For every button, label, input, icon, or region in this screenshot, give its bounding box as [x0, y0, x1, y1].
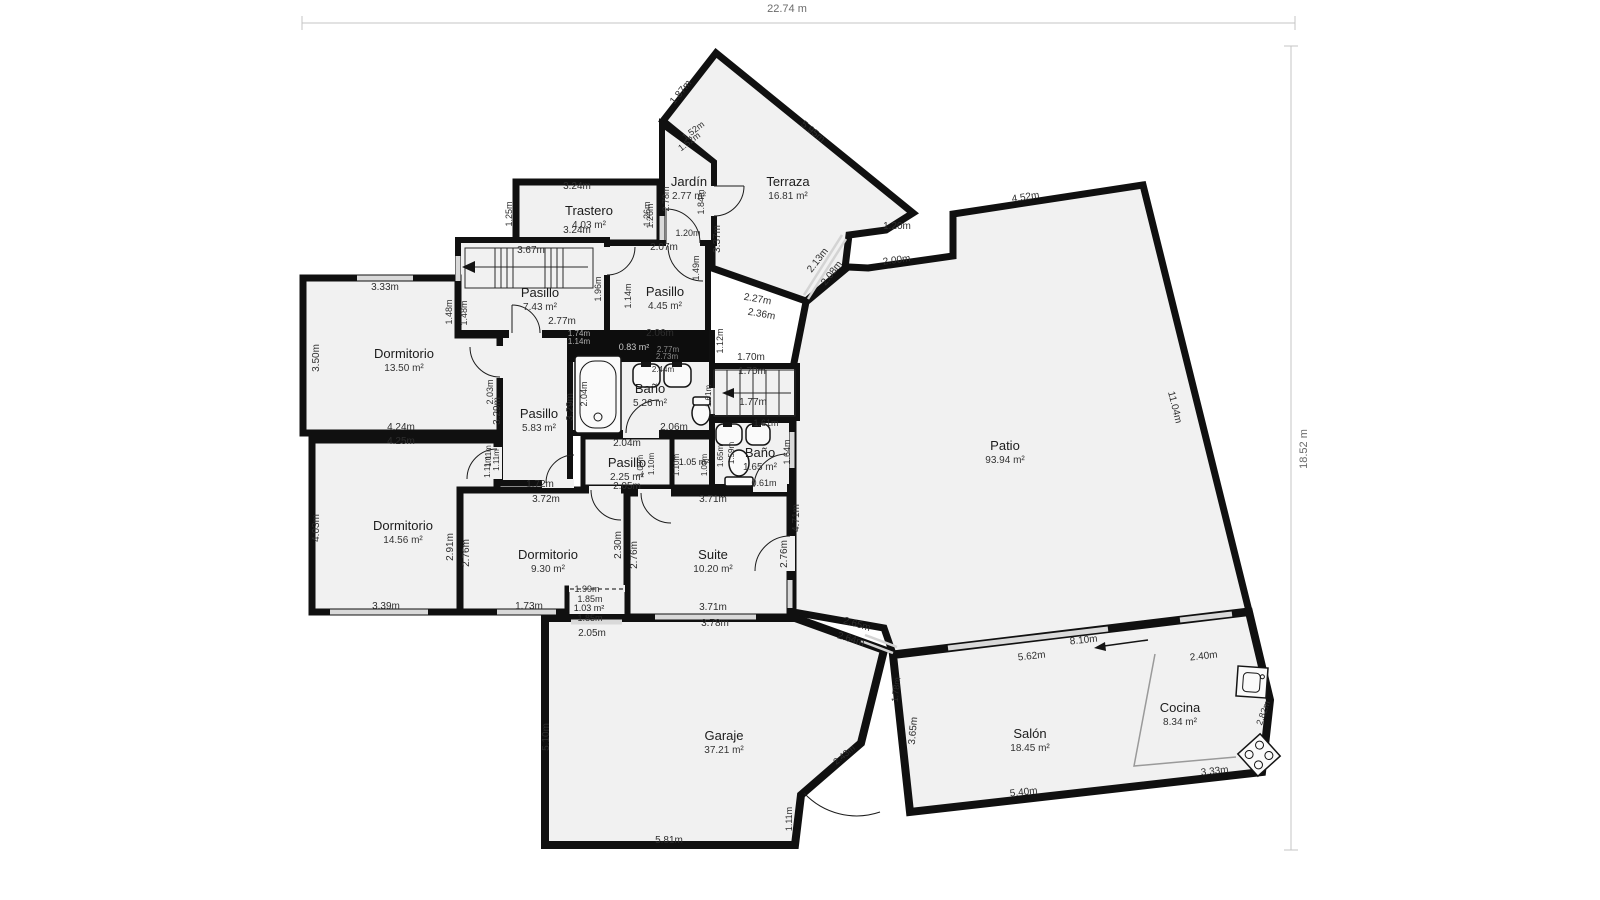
room-label-dormitorio-3: Dormitorio — [518, 547, 578, 562]
dimension-label: 2.27m — [743, 292, 772, 308]
floor-plan-page: 22.74 m 18.52 m Terraza16.81 m²Jardín2.7… — [0, 0, 1600, 900]
dimension-label: 2.07m — [650, 242, 678, 253]
dimension-label: 2.77m — [548, 316, 576, 327]
dimension-label: 2.30m — [613, 531, 624, 559]
room-area-patio: 93.94 m² — [985, 455, 1025, 466]
dimension-label: 2.76m — [779, 540, 790, 568]
dimension-label: 1.11m — [492, 449, 501, 471]
dimension-label: 0.61m — [751, 478, 776, 488]
door-arc — [804, 793, 880, 816]
dimension-label: 2.76m — [629, 541, 640, 569]
room-label-dormitorio-1: Dormitorio — [374, 346, 434, 361]
dimension-label: 1.48m — [459, 300, 469, 325]
dimension-label: 1.48m — [444, 299, 454, 324]
dimension-label: 4.25m — [387, 436, 415, 447]
dimension-label: 1.10m — [672, 454, 681, 477]
dimension-label: 3.33m — [371, 282, 399, 293]
dimension-label: 4.71m — [791, 504, 802, 532]
dimension-label: 2.76m — [461, 539, 472, 567]
dimension-label: 1.09m — [700, 454, 709, 477]
dimension-label: 1.11m — [784, 807, 794, 831]
room-label-bano-principal: Baño — [635, 381, 665, 396]
dimension-label: 2.73m — [656, 352, 679, 361]
room-area-pasillo-central: 5.83 m² — [522, 423, 557, 434]
room-area-cocina: 8.34 m² — [1163, 717, 1198, 728]
room-area-pasillo-escalera: 7.43 m² — [523, 302, 558, 313]
dimension-label: 3.39m — [372, 601, 400, 612]
dimension-label: 1.65m — [716, 445, 725, 468]
dimension-label: 5.81m — [655, 835, 683, 846]
room-label-pasillo-norte: Pasillo — [646, 284, 684, 299]
dimension-label: 1.99m — [574, 584, 599, 594]
dimension-label: 1.70m — [738, 366, 766, 377]
dimension-label: 1.10m — [647, 453, 656, 476]
dimension-label: 1.73m — [515, 601, 543, 612]
room-area-salon: 18.45 m² — [1010, 743, 1050, 754]
dimension-label: 2.44m — [652, 365, 675, 374]
dimension-label: 2.04m — [579, 381, 589, 406]
dimension-label: 1.20m — [883, 221, 911, 232]
dimension-label: 1.72m — [526, 479, 554, 490]
dimension-label: 1.77m — [739, 397, 767, 408]
overall-width-label: 22.74 m — [767, 3, 807, 15]
room-label-bano-pequeno: Baño — [745, 445, 775, 460]
room-area-armario-oscuro: 0.83 m² — [619, 342, 650, 352]
room-label-suite: Suite — [698, 547, 728, 562]
dimension-label: 3.24m — [563, 181, 591, 192]
room-area-dormitorio-1: 13.50 m² — [384, 363, 424, 374]
room-label-pasillo-central: Pasillo — [520, 406, 558, 421]
room-area-armario-2: 1.03 m² — [574, 603, 605, 613]
room-area-pasillo-norte: 4.45 m² — [648, 301, 683, 312]
dimension-label: 1.20m — [675, 228, 700, 238]
dimension-label: 2.04m — [613, 438, 641, 449]
dimension-label: 3.50m — [311, 344, 322, 372]
room-area-dormitorio-2: 14.56 m² — [383, 535, 423, 546]
dimension-label: 4.24m — [387, 422, 415, 433]
room-area-terraza: 16.81 m² — [768, 191, 808, 202]
dimension-label: 1.61m — [753, 418, 778, 428]
room-label-terraza: Terraza — [766, 174, 810, 189]
dimension-label: 3.29m — [565, 393, 576, 421]
dimension-label: 1.70m — [737, 352, 765, 363]
room-area-garaje: 37.21 m² — [704, 745, 744, 756]
dimension-label: 1.49m — [691, 255, 701, 280]
room-label-pasillo-escalera: Pasillo — [521, 285, 559, 300]
dimension-label: 1.12m — [715, 328, 725, 353]
dimension-label: 3.67m — [517, 245, 545, 256]
dimension-label: 1.09m — [636, 455, 645, 478]
dimension-label: 3.78m — [701, 618, 729, 629]
overall-dimension-top: 22.74 m — [302, 3, 1295, 30]
overall-dimension-right: 18.52 m — [1284, 46, 1310, 850]
room-area-bano-pequeno: 1.65 m² — [743, 462, 778, 473]
dimension-label: 1.25m — [504, 201, 514, 226]
dimension-label: 1.64m — [782, 439, 792, 464]
overall-height-label: 18.52 m — [1298, 429, 1310, 469]
floor-plan-canvas: 22.74 m 18.52 m Terraza16.81 m²Jardín2.7… — [0, 0, 1600, 900]
room-label-dormitorio-2: Dormitorio — [373, 518, 433, 533]
dimension-label: 1.11m — [483, 456, 492, 478]
dimension-label: 2.78m — [661, 186, 671, 211]
room-label-cocina: Cocina — [1160, 700, 1201, 715]
dimension-label: 3.37m — [712, 225, 723, 253]
dimension-label: 2.06m — [660, 422, 688, 433]
kitchen-sink-icon — [1236, 666, 1268, 698]
dimension-label: 1.14m — [568, 337, 591, 346]
dimension-label: 1.59m — [727, 442, 736, 465]
dimension-label: 3.71m — [699, 494, 727, 505]
dimension-label: 2.91m — [445, 533, 456, 561]
room-area-bano-principal: 5.26 m² — [633, 398, 668, 409]
room-label-jardin: Jardín — [671, 174, 707, 189]
dimension-label: 1.26m — [642, 201, 652, 226]
dimension-label: 2.03m — [485, 379, 495, 404]
dimension-label: 5.10m — [541, 723, 552, 751]
dimension-label: 1.14m — [623, 283, 633, 308]
dimension-label: 1.96m — [593, 276, 603, 301]
room-label-garaje: Garaje — [704, 728, 743, 743]
dimension-label: 3.71m — [699, 602, 727, 613]
dimension-label: 3.72m — [532, 494, 560, 505]
dimension-label: 1.61m — [704, 385, 713, 408]
dimension-label: 2.36m — [747, 307, 776, 323]
dimension-label: 2.06m — [646, 328, 674, 339]
room-label-salon: Salón — [1013, 726, 1046, 741]
room-area-dormitorio-3: 9.30 m² — [531, 564, 566, 575]
room-area-suite: 10.20 m² — [693, 564, 733, 575]
room-label-trastero: Trastero — [565, 203, 613, 218]
dimension-label: 3.24m — [563, 225, 591, 236]
dimension-label: 2.05m — [613, 481, 641, 492]
sink-icon — [716, 422, 742, 445]
room-label-patio: Patio — [990, 438, 1020, 453]
dimension-label: 1.85m — [577, 613, 602, 623]
dimension-label: 4.03m — [311, 514, 322, 542]
dimension-label: 1.85m — [577, 594, 602, 604]
dimension-label: 1.84m — [696, 189, 706, 214]
dimension-label: 2.05m — [578, 628, 606, 639]
